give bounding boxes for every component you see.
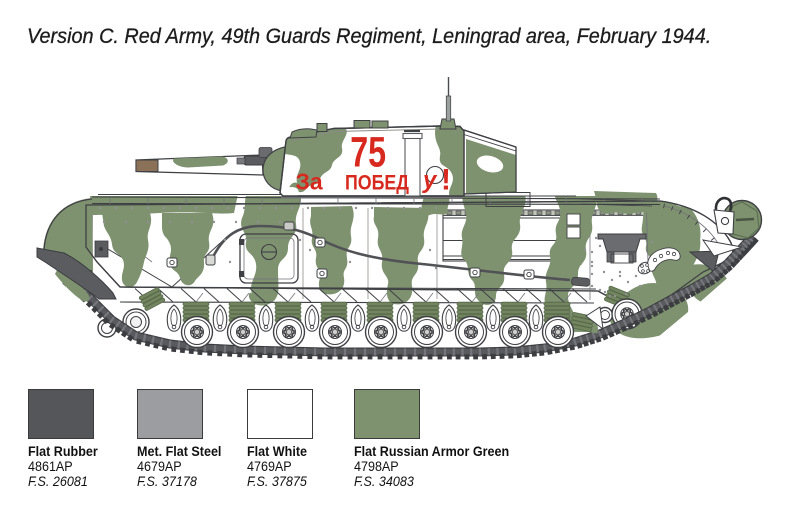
svg-text:75: 75	[350, 130, 386, 177]
svg-text:ПОБЕД: ПОБЕД	[345, 171, 409, 195]
svg-text:!: !	[441, 164, 451, 197]
svg-text:За: За	[296, 169, 323, 195]
svg-text:у: у	[422, 167, 438, 194]
